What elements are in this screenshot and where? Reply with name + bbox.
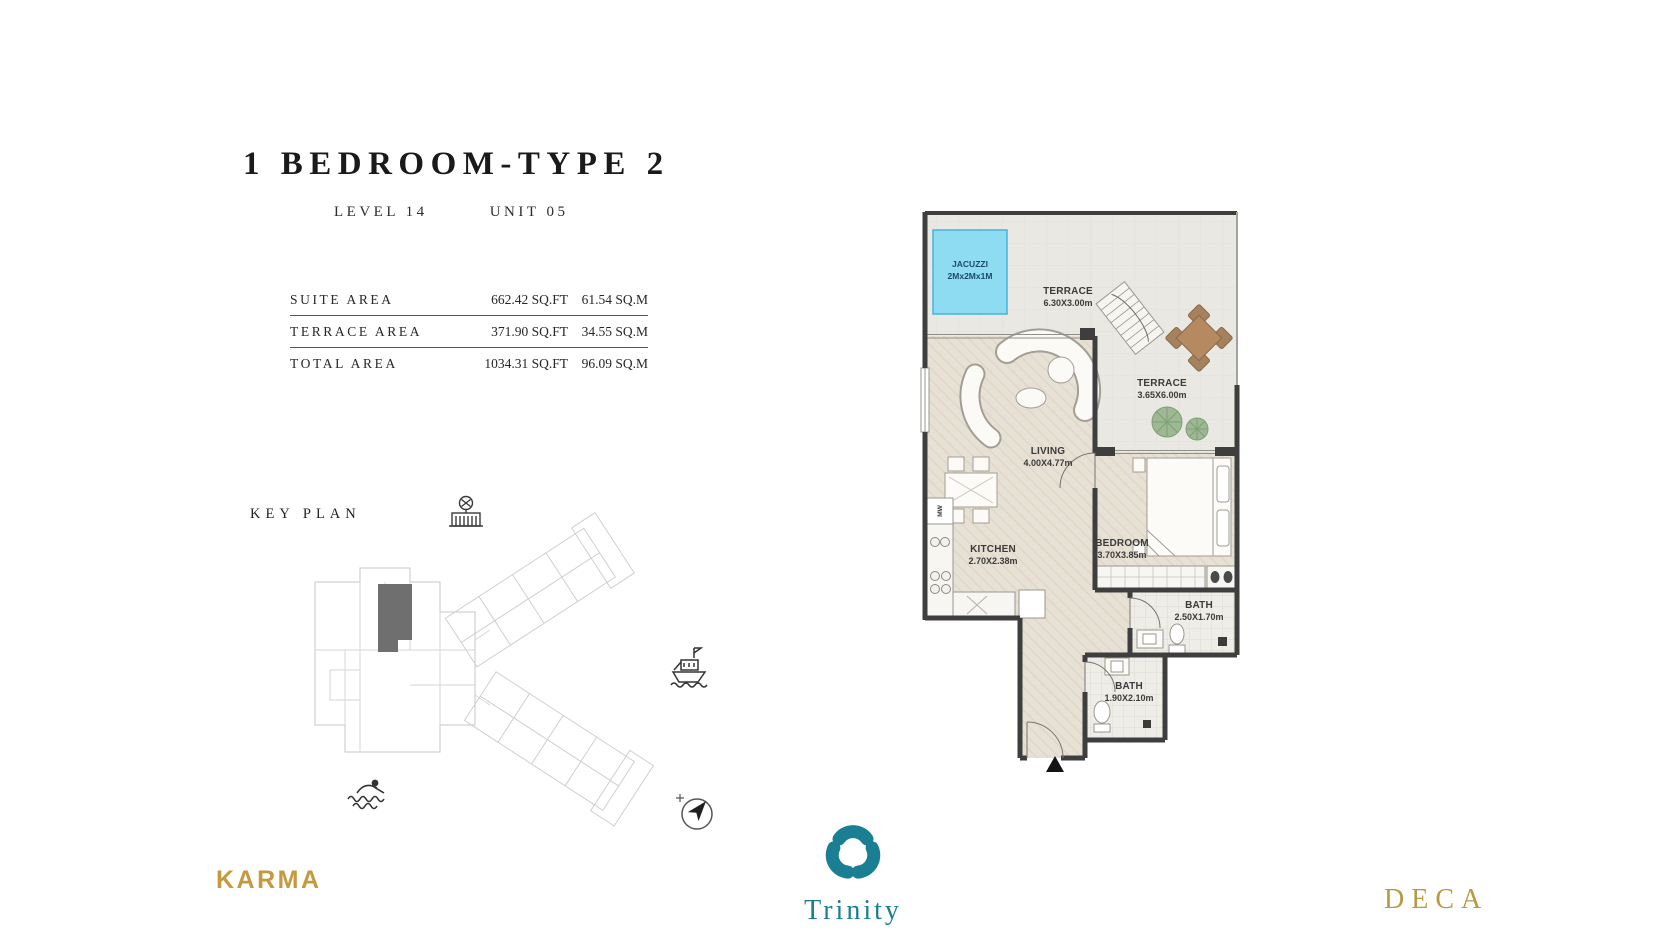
kitchen-label: KITCHEN — [970, 544, 1016, 555]
trinity-trefoil-icon — [815, 816, 891, 888]
compass-icon — [672, 788, 718, 834]
bath2-dims: 1.90X2.10m — [1104, 693, 1153, 703]
trinity-logo: Trinity — [778, 816, 928, 927]
unit-label: UNIT 05 — [490, 204, 569, 221]
jacuzzi-label: JACUZZI — [952, 259, 988, 269]
bedroom-wardrobe — [1097, 566, 1205, 588]
swimmer-icon — [344, 776, 390, 810]
terrace-area-sqft: 371.90 SQ.FT — [460, 324, 568, 340]
page-title: 1 BEDROOM-TYPE 2 — [243, 146, 670, 183]
jacuzzi-dims: 2Mx2Mx1M — [948, 271, 993, 281]
terrace-area-sqm: 34.55 SQ.M — [568, 324, 648, 340]
brochure-page: { "header": { "title": "1 BEDROOM-TYPE 2… — [0, 0, 1676, 943]
living-window — [921, 368, 929, 432]
deca-logo: DECA — [1384, 884, 1488, 916]
terrace-side-label: TERRACE — [1137, 378, 1187, 389]
ship-icon — [668, 644, 710, 690]
living-label: LIVING — [1031, 446, 1066, 457]
table-row: TERRACE AREA 371.90 SQ.FT 34.55 SQ.M — [290, 316, 648, 348]
table-row: TOTAL AREA 1034.31 SQ.FT 96.09 SQ.M — [290, 348, 648, 379]
terrace-top-label: TERRACE — [1043, 286, 1093, 297]
jacuzzi: JACUZZI 2Mx2Mx1M — [933, 230, 1007, 314]
terrace-area-label: TERRACE AREA — [290, 324, 460, 340]
total-area-sqft: 1034.31 SQ.FT — [460, 356, 568, 372]
bath1-dims: 2.50X1.70m — [1174, 612, 1223, 622]
living-dims: 4.00X4.77m — [1023, 458, 1072, 468]
wall-pillar — [1095, 447, 1115, 456]
bedroom-label: BEDROOM — [1095, 538, 1149, 549]
wall-pillar — [1215, 447, 1237, 456]
level-unit-row: LEVEL 14 UNIT 05 — [334, 204, 569, 221]
trinity-wordmark: Trinity — [778, 895, 928, 927]
area-table: SUITE AREA 662.42 SQ.FT 61.54 SQ.M TERRA… — [290, 284, 648, 379]
suite-area-label: SUITE AREA — [290, 292, 460, 308]
suite-area-sqft: 662.42 SQ.FT — [460, 292, 568, 308]
key-plan-upper-wing — [442, 513, 635, 673]
suite-area-sqm: 61.54 SQ.M — [568, 292, 648, 308]
terrace-side-dims: 3.65X6.00m — [1137, 390, 1186, 400]
key-plan-lower-wing — [461, 666, 654, 826]
microwave-label: MW — [937, 504, 944, 516]
table-row: SUITE AREA 662.42 SQ.FT 61.54 SQ.M — [290, 284, 648, 316]
kitchen-dims: 2.70X2.38m — [968, 556, 1017, 566]
total-area-sqm: 96.09 SQ.M — [568, 356, 648, 372]
bath2-label: BATH — [1115, 681, 1143, 692]
key-plan-unit-highlight — [378, 584, 412, 652]
total-area-label: TOTAL AREA — [290, 356, 460, 372]
terrace-top-dims: 6.30X3.00m — [1043, 298, 1092, 308]
building-icon — [446, 494, 486, 532]
bath1-label: BATH — [1185, 600, 1213, 611]
karma-logo: KARMA — [216, 866, 322, 895]
wall-pillar — [1080, 328, 1095, 340]
level-label: LEVEL 14 — [334, 204, 428, 221]
floor-plan: JACUZZI 2Mx2Mx1M — [915, 200, 1260, 775]
twin-basin-counter — [1207, 566, 1237, 588]
bedroom-dims: 3.70X3.85m — [1097, 550, 1146, 560]
